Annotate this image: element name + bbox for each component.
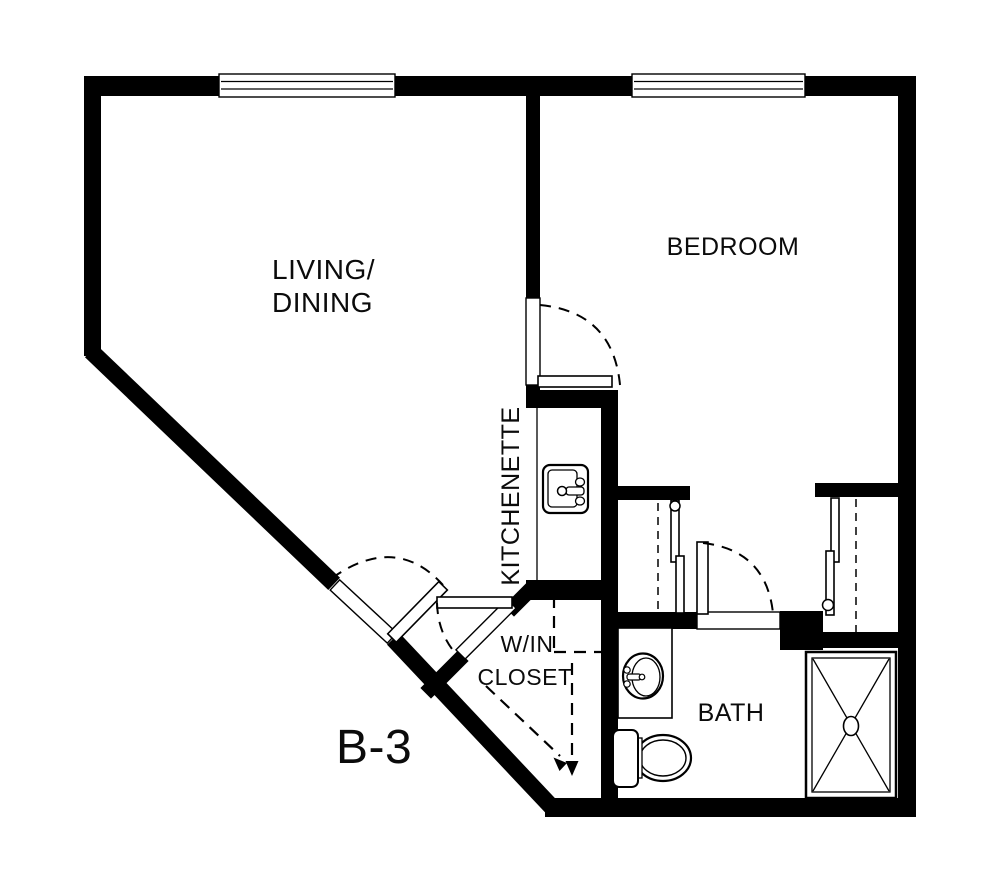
bathroom-sink xyxy=(623,654,663,699)
label-living-line2: DINING xyxy=(272,287,373,318)
faucet-handle-icon xyxy=(576,497,585,505)
label-bedroom: BEDROOM xyxy=(667,233,800,261)
door-pull-icon xyxy=(670,501,680,511)
toilet xyxy=(613,730,691,787)
floor-plan-drawing: LIVING/ DINING BEDROOM KITCHENETTE W/IN … xyxy=(0,0,998,893)
wall-closet-partition-lower xyxy=(431,661,458,688)
wall-diagonal-upper xyxy=(97,357,328,578)
closet-door-swing-arc xyxy=(437,603,459,657)
arrowhead-icon xyxy=(554,758,568,772)
bath-door-leaf xyxy=(697,542,708,614)
faucet-handle-icon xyxy=(624,667,630,673)
wall-bottom xyxy=(545,798,916,817)
entry-door-swing-arc xyxy=(332,557,443,585)
window-bedroom xyxy=(632,74,805,97)
label-win-closet-line2: CLOSET xyxy=(477,664,572,690)
faucet-spout-icon xyxy=(566,487,584,495)
wall-closet-partition-upper xyxy=(514,593,527,606)
faucet-icon xyxy=(558,487,567,496)
wall-living-bedroom-divider xyxy=(526,96,540,298)
bedroom-door-swing-arc xyxy=(540,305,620,385)
wall-right xyxy=(898,76,916,817)
wall-left xyxy=(84,76,101,356)
wall-closet-right-bottom xyxy=(806,632,898,648)
entry-door xyxy=(330,557,447,643)
bath-door xyxy=(697,542,780,629)
unit-label: B-3 xyxy=(336,721,412,774)
arrowhead-icon xyxy=(566,761,579,776)
bedroom-door-opening xyxy=(526,298,540,385)
drain-icon xyxy=(639,674,645,680)
shower-drain-icon xyxy=(844,717,859,736)
kitchen-sink xyxy=(543,465,588,513)
window-living xyxy=(219,74,395,97)
bath-door-swing-arc xyxy=(703,543,773,613)
wall-bath-top xyxy=(601,612,698,629)
faucet-handle-icon xyxy=(624,681,630,687)
faucet-handle-icon xyxy=(576,478,585,486)
closet-door-leaf xyxy=(437,597,512,608)
label-bath: BATH xyxy=(698,699,765,727)
label-win-closet-line1: W/IN xyxy=(500,631,553,657)
wall-bedroom-south-left xyxy=(609,486,690,500)
wall-closet-right-top xyxy=(815,483,898,497)
door-pull-icon xyxy=(823,600,834,611)
wall-kitchenette-bottom xyxy=(526,580,603,600)
bypass-door-panel xyxy=(676,556,684,613)
bedroom-closet-right xyxy=(823,498,857,634)
bedroom-door xyxy=(526,298,620,387)
bedroom-closet-left xyxy=(658,500,684,613)
kitchenette-counter xyxy=(537,408,588,580)
bedroom-door-leaf xyxy=(538,376,612,387)
label-living-line1: LIVING/ xyxy=(272,254,375,285)
bath-door-opening xyxy=(697,612,780,629)
shower xyxy=(806,652,896,798)
label-kitchenette: KITCHENETTE xyxy=(497,406,525,585)
floor-plan-page: LIVING/ DINING BEDROOM KITCHENETTE W/IN … xyxy=(0,0,998,893)
